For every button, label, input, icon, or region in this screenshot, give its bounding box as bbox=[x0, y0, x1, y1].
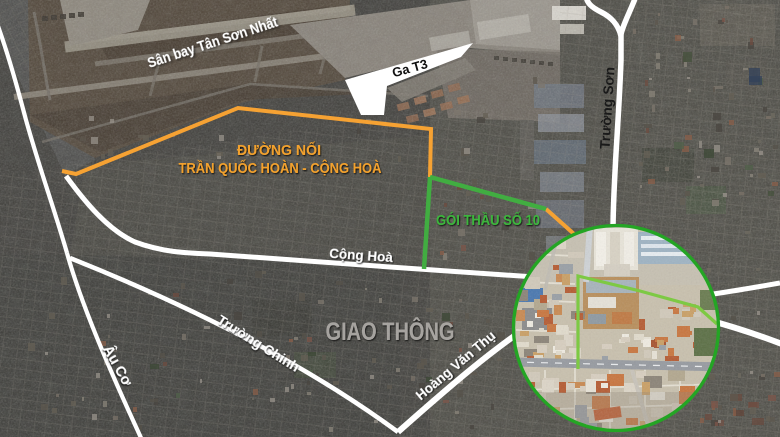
svg-text:TRẦN QUỐC HOÀN - CỘNG HOÀ: TRẦN QUỐC HOÀN - CỘNG HOÀ bbox=[179, 159, 382, 177]
svg-text:GÓI THẦU SỐ 10: GÓI THẦU SỐ 10 bbox=[436, 211, 540, 229]
svg-text:ĐƯỜNG NỐI: ĐƯỜNG NỐI bbox=[237, 141, 321, 159]
svg-text:GIAO THÔNG: GIAO THÔNG bbox=[326, 316, 455, 346]
